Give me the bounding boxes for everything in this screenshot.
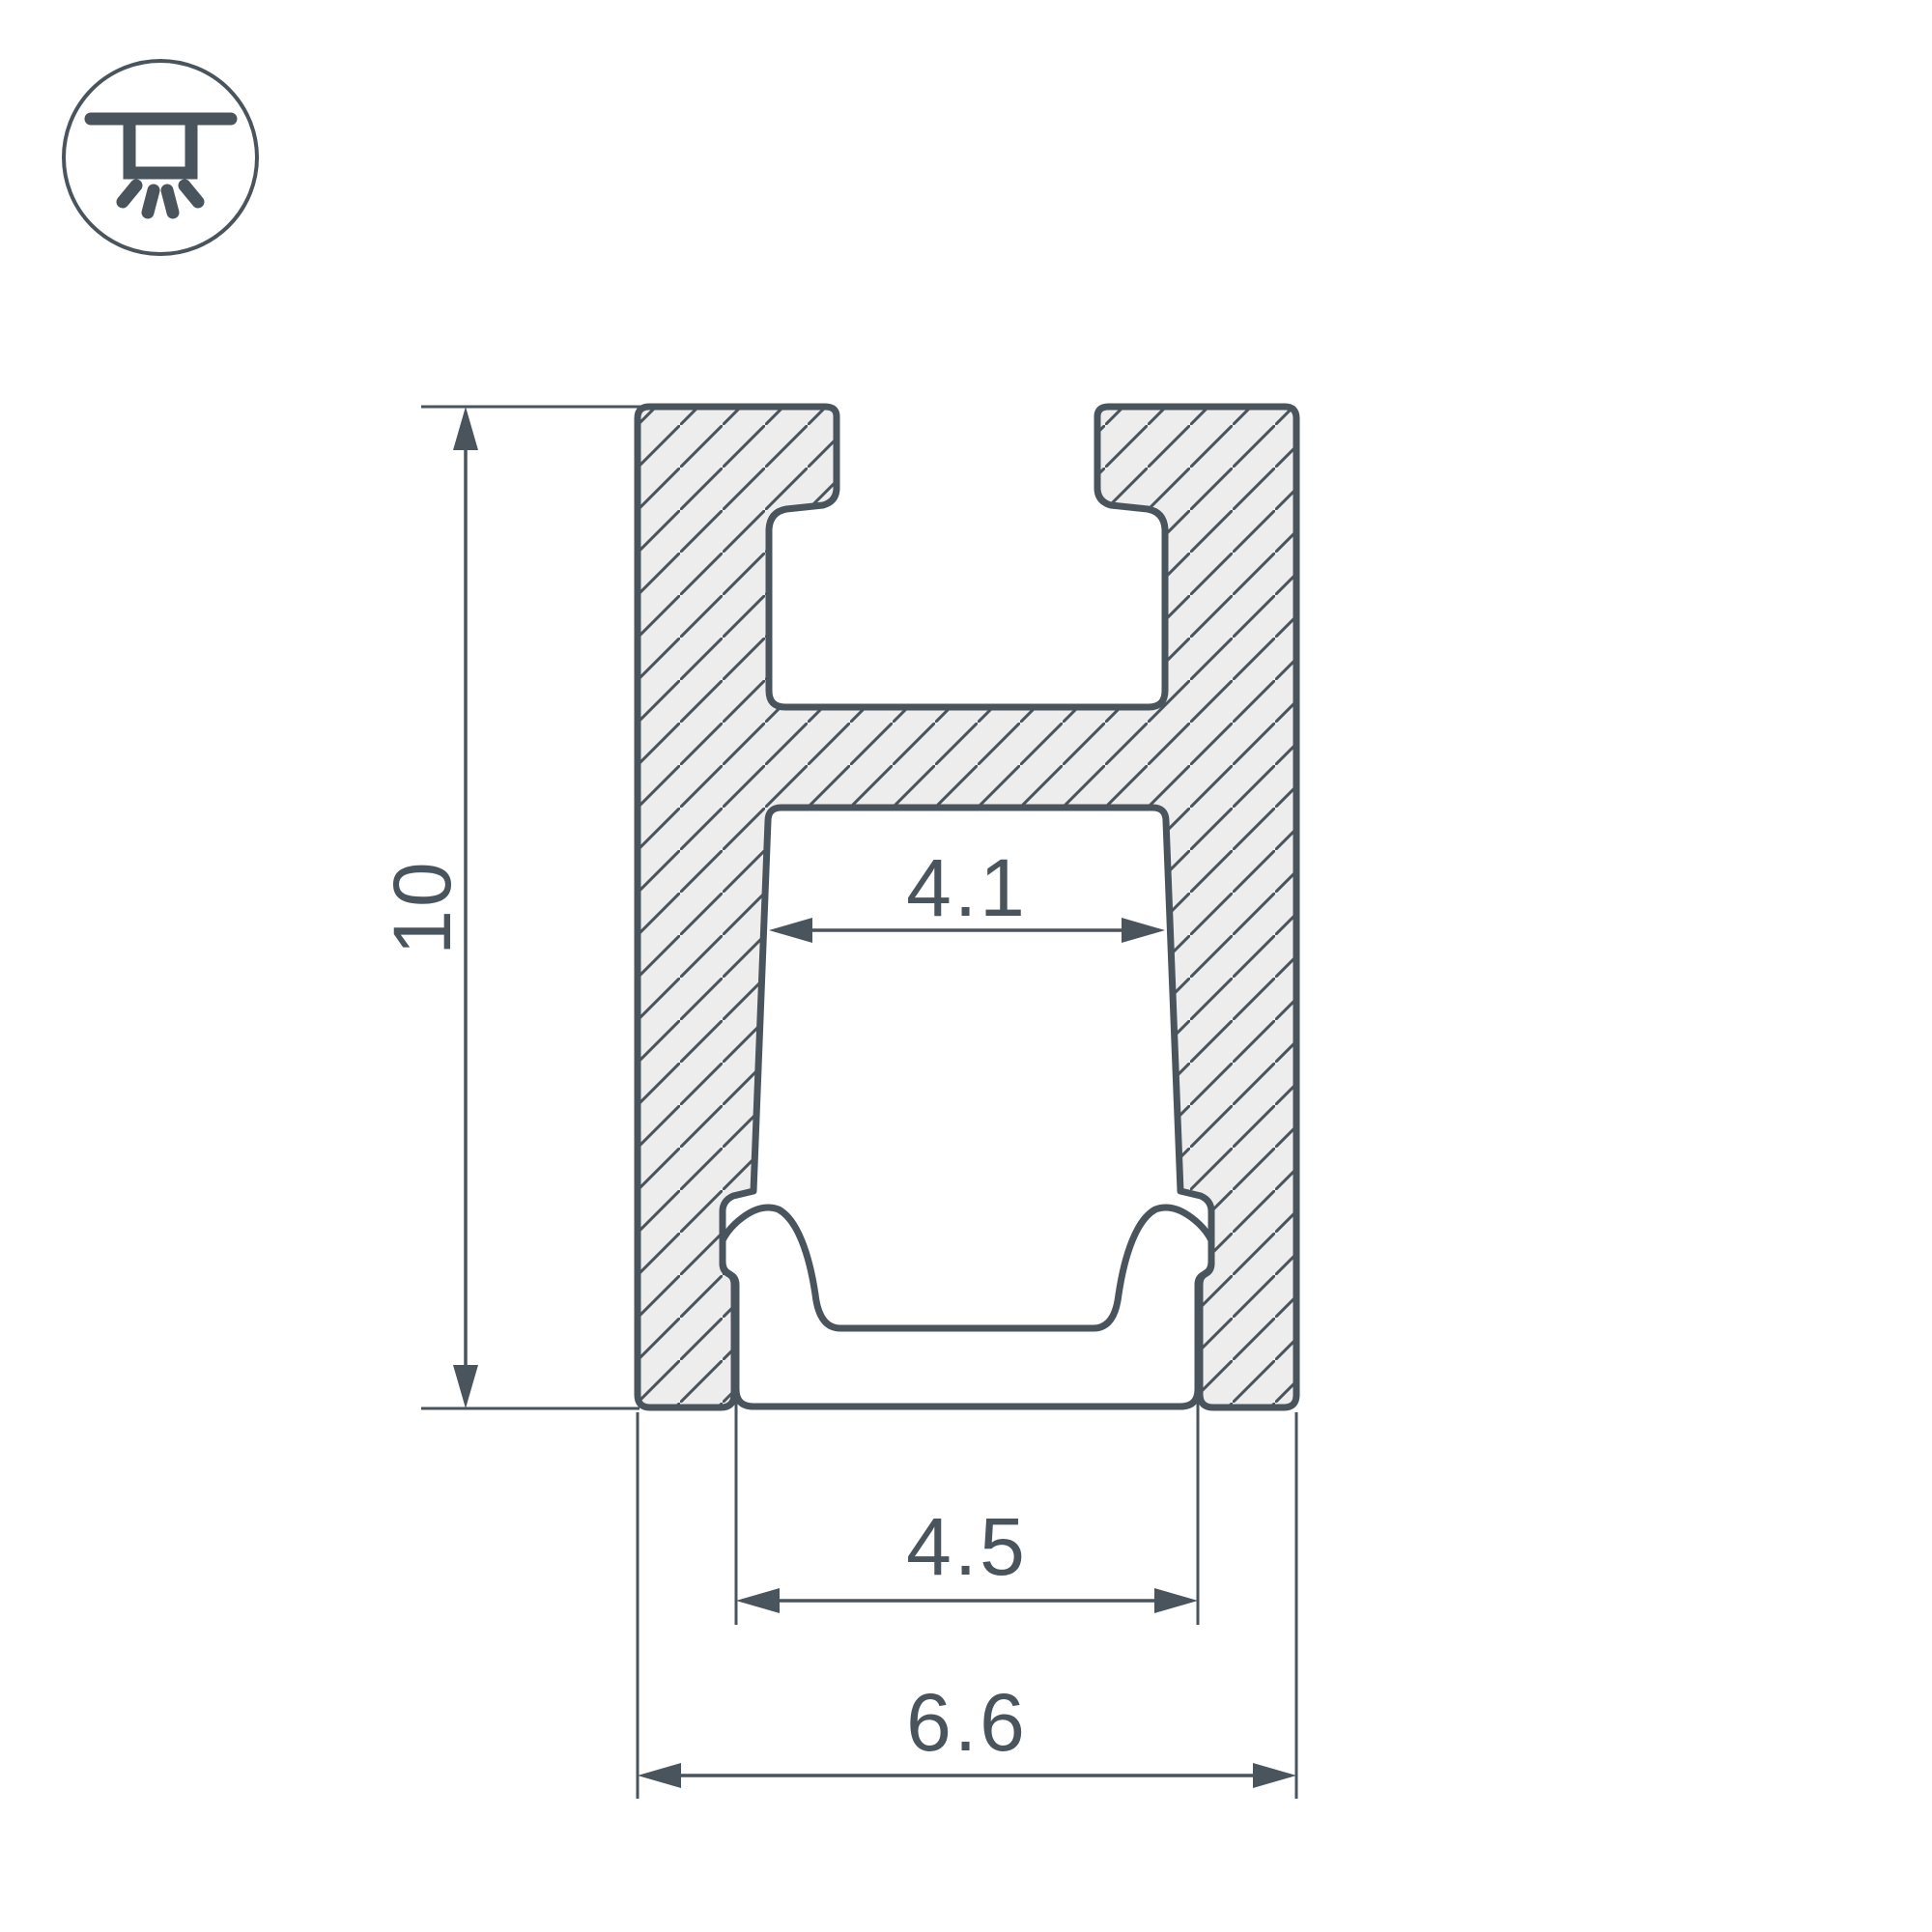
clip-insert — [723, 1207, 1211, 1406]
arrowhead-left — [769, 918, 812, 943]
arrowhead-down — [453, 1365, 478, 1408]
dimension-label-height: 10 — [377, 859, 468, 954]
arrowhead-left — [638, 1763, 681, 1788]
arrowhead-up — [453, 407, 478, 450]
arrowhead-right — [1253, 1763, 1296, 1788]
dimension-inner-width: 4.1 — [769, 842, 1165, 943]
dimension-opening-width: 4.5 — [736, 1399, 1198, 1625]
technical-drawing-page: 10 4.1 4.5 6.6 — [0, 0, 1932, 1932]
arrowhead-right — [1122, 918, 1165, 943]
dimension-label-overall-width: 6.6 — [906, 1677, 1028, 1768]
icon-light-rays — [123, 185, 198, 213]
arrowhead-left — [736, 1588, 780, 1613]
dimension-label-inner-width: 4.1 — [906, 842, 1028, 933]
clip-outline — [723, 1207, 1211, 1406]
dimension-height: 10 — [377, 407, 643, 1408]
arrowhead-right — [1154, 1588, 1198, 1613]
dimension-label-opening-width: 4.5 — [906, 1501, 1028, 1592]
icon-fixture-box — [129, 119, 191, 173]
icon-circle — [64, 61, 257, 254]
recessed-ceiling-light-icon — [64, 61, 257, 254]
profile-drawing: 10 4.1 4.5 6.6 — [0, 0, 1932, 1932]
